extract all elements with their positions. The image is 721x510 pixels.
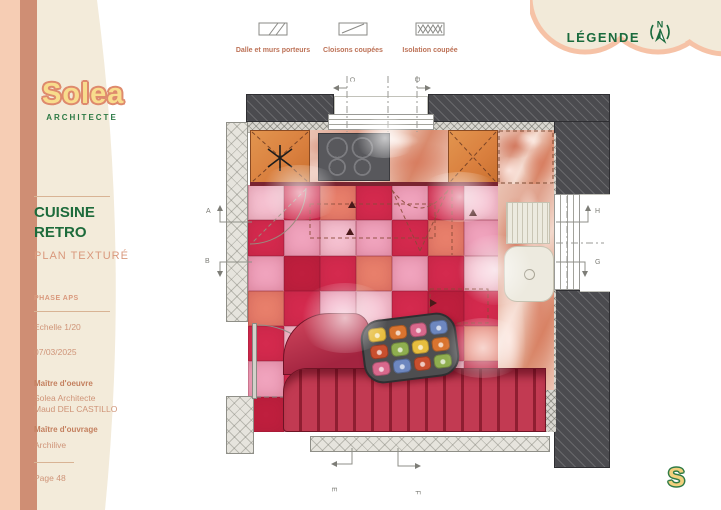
floor-tile [428, 256, 464, 291]
wall-right-upper [554, 121, 610, 196]
cabinet-left [250, 130, 310, 184]
window-top-opening [334, 96, 428, 116]
window-right-frame [554, 194, 580, 290]
floor-tile [464, 291, 500, 326]
floor-tile [464, 220, 500, 255]
floor-tile [320, 256, 356, 291]
floor-tile [284, 220, 320, 255]
project-title: CUISINE RETRO [34, 203, 95, 242]
table-pattern-cell [433, 353, 452, 369]
floor-tile [356, 220, 392, 255]
section-letter-e: E [330, 487, 337, 492]
legend-item-cloisons: Cloisons coupées [317, 22, 389, 54]
wall-right-lower [554, 290, 610, 468]
section-letter-a: A [206, 208, 211, 215]
page-number: Page 48 [34, 473, 66, 483]
wall-top-right [428, 94, 610, 122]
section-letter-f: F [414, 490, 421, 494]
moe-person: Maud DEL CASTILLO [34, 404, 117, 414]
svg-text:N: N [657, 20, 664, 30]
wall-bottom [310, 436, 550, 452]
date-label: 07/03/2025 [34, 347, 77, 357]
table-pattern-cell [429, 319, 448, 335]
footer-brand-mark: S [668, 462, 685, 493]
table-pattern-cell [413, 356, 432, 372]
north-compass-icon: N [647, 18, 673, 46]
left-pink-strip [0, 0, 20, 510]
floor-tile [356, 185, 392, 220]
floor-tile [392, 220, 428, 255]
table-pattern-cell [390, 341, 409, 357]
plan-type: PLAN TEXTURÉ [34, 250, 129, 262]
floor-tile [284, 185, 320, 220]
divider [34, 462, 74, 463]
floor-tile [464, 185, 500, 220]
moe-name: Solea Architecte [34, 393, 95, 403]
floor-tile [392, 185, 428, 220]
section-letter-c: C [348, 77, 355, 82]
floor-tile [320, 220, 356, 255]
table-pattern-cell [411, 339, 430, 355]
wall-left [226, 122, 248, 322]
floor-tile [464, 256, 500, 291]
section-letter-b: B [205, 258, 210, 265]
floor-tile [464, 326, 500, 361]
table-pattern-cell [409, 322, 428, 338]
door-leaf [252, 323, 257, 399]
titleblock: Solea ARCHITECTE CUISINE RETRO PLAN TEXT… [30, 0, 130, 510]
phase-label: PHASE APS [34, 295, 79, 302]
hatched-wall-icon [258, 22, 288, 36]
counter-front-edge [250, 182, 498, 186]
wall-top-left [246, 94, 334, 122]
insulation-icon [415, 22, 445, 36]
wall-left-corner [226, 396, 254, 454]
logo-subtitle: ARCHITECTE [42, 113, 122, 122]
counter-marble-corner [498, 130, 554, 184]
floor-tile [320, 185, 356, 220]
floor-tile [392, 256, 428, 291]
floor-tile [248, 256, 284, 291]
moa-label: Maître d'ouvrage [34, 425, 98, 434]
cabinet-right [448, 130, 498, 184]
sink-drain-hole [524, 269, 535, 280]
legend-title: LÉGENDE [567, 30, 640, 45]
floor-tile [284, 256, 320, 291]
section-letter-d: D [413, 77, 420, 82]
legend-item-isolation: Isolation coupée [394, 22, 466, 54]
sink-drainboard [506, 202, 550, 244]
floor-tile [248, 220, 284, 255]
floor-tile [428, 220, 464, 255]
table-pattern-cell [388, 324, 407, 340]
floor-tile [248, 291, 284, 326]
moe-label: Maître d'oeuvre [34, 379, 93, 388]
table-pattern-cell [431, 336, 450, 352]
retro-table [358, 310, 461, 385]
window-top-frame [328, 114, 434, 130]
floor-tile [248, 185, 284, 220]
solea-logo: Solea ARCHITECTE [42, 78, 122, 122]
moa-name: Archilive [34, 440, 66, 450]
table-pattern-cell [372, 361, 391, 377]
legend-item-dalle: Dalle et murs porteurs [232, 22, 314, 54]
section-letter-g: G [595, 259, 600, 266]
divider [34, 196, 110, 197]
divider [34, 311, 110, 312]
logo-text: Solea [42, 78, 122, 111]
table-pattern-cell [367, 327, 386, 343]
floor-tile [428, 185, 464, 220]
sheet: Solea ARCHITECTE CUISINE RETRO PLAN TEXT… [0, 0, 721, 510]
scale-label: Echelle 1/20 [34, 322, 81, 332]
table-pattern-cell [369, 344, 388, 360]
table-pattern-cell [392, 358, 411, 374]
floor-tile [356, 256, 392, 291]
legend-items: Dalle et murs porteurs Cloisons coupées … [232, 22, 472, 67]
section-letter-h: H [595, 208, 600, 215]
partition-wall-icon [338, 22, 368, 36]
cooktop [318, 133, 390, 181]
